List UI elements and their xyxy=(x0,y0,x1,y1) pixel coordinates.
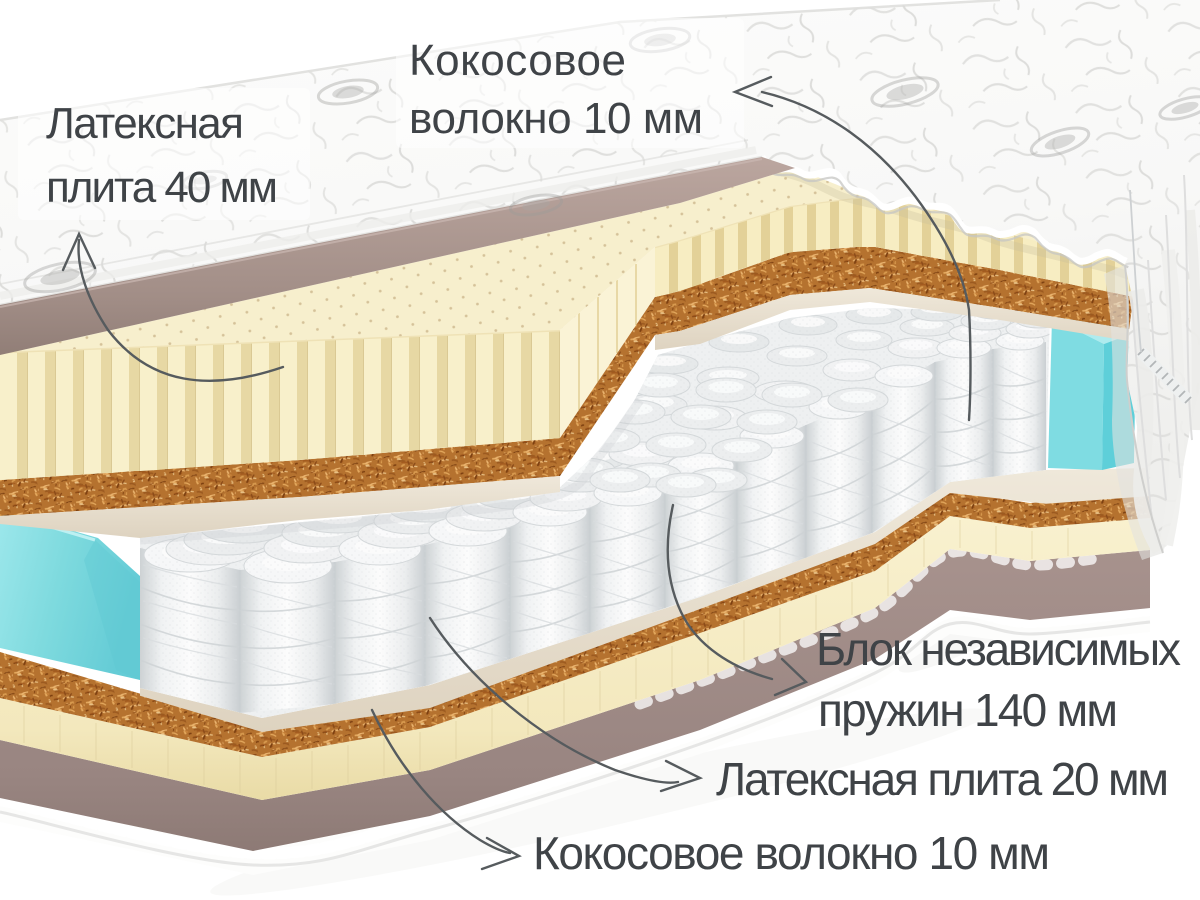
svg-text:Латексная плита 20 мм: Латексная плита 20 мм xyxy=(716,753,1169,805)
svg-text:Латексная: Латексная xyxy=(46,99,244,148)
svg-text:плита 40 мм: плита 40 мм xyxy=(46,163,278,212)
svg-text:Блок независимых: Блок независимых xyxy=(816,623,1181,675)
svg-text:Кокосовое волокно 10 мм: Кокосовое волокно 10 мм xyxy=(533,827,1050,879)
svg-text:Кокосовое: Кокосовое xyxy=(409,36,626,85)
svg-text:волокно 10 мм: волокно 10 мм xyxy=(409,94,703,143)
svg-text:пружин 140 мм: пружин 140 мм xyxy=(818,684,1118,736)
